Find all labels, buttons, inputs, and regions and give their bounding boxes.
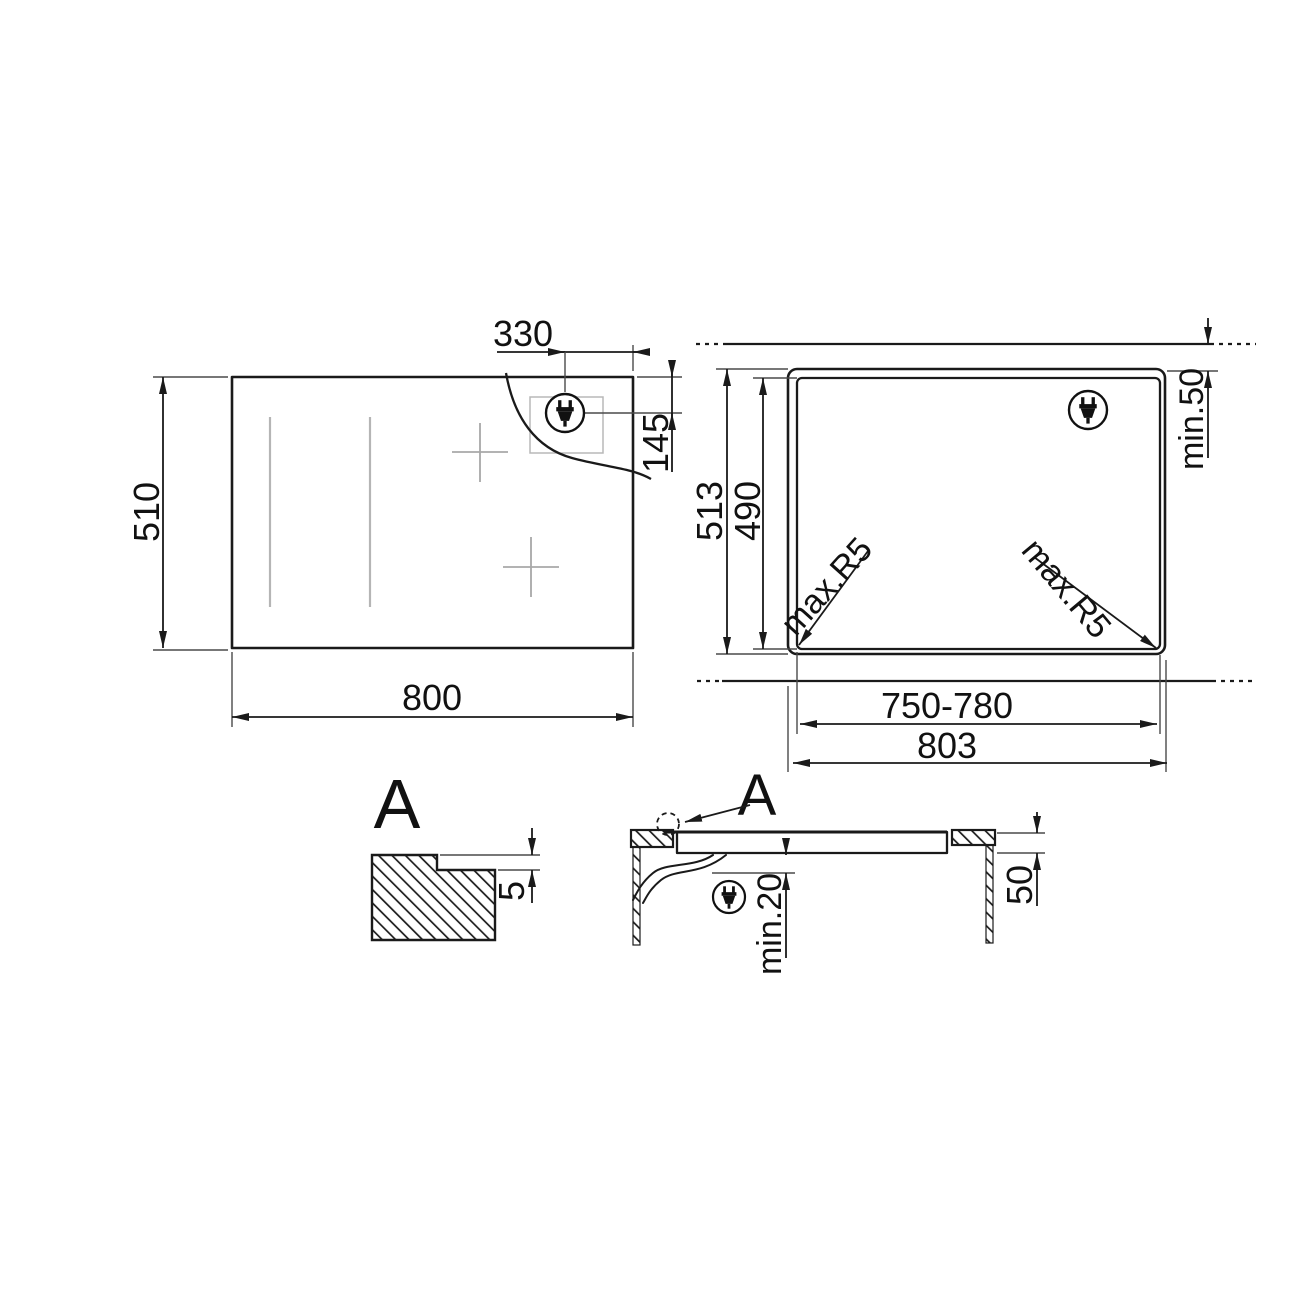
outer-height-dimension-label: 513 <box>689 481 730 541</box>
bottom-clearance-dimension-label: min.20 <box>751 873 789 975</box>
outer-width-dimension-label: 803 <box>917 725 977 766</box>
worktop-thickness-dimension-label: 50 <box>999 865 1040 905</box>
section-label: A <box>738 763 777 828</box>
worktop-rebate-section <box>372 855 495 940</box>
power-plug-icon <box>1069 391 1107 429</box>
detail-a-view: A 5 <box>372 765 540 940</box>
cabinet-wall-right <box>986 845 993 943</box>
zone-cross-marker <box>452 423 508 482</box>
step-depth-dimension-label: 5 <box>491 881 532 901</box>
power-plug-icon <box>546 394 584 432</box>
plug-inset-dimension-label: 145 <box>635 413 676 473</box>
mains-cable <box>633 855 713 900</box>
installation-drawing-page: 510 800 330 145 <box>0 0 1300 1300</box>
hob-body-section <box>677 832 947 853</box>
worktop-section-right <box>952 830 995 845</box>
detail-label: A <box>374 765 421 843</box>
height-dimension-label: 510 <box>126 482 167 542</box>
installation-drawing: 510 800 330 145 <box>0 0 1300 1300</box>
plug-offset-dimension-label: 330 <box>493 313 553 354</box>
cutout-view: 513 490 min.50 max.R5 max.R5 750-780 803 <box>689 318 1256 772</box>
zone-cross-marker <box>503 537 559 597</box>
power-plug-icon <box>713 881 745 913</box>
rear-clearance-dimension-label: min.50 <box>1173 368 1211 470</box>
top-view: 510 800 330 145 <box>126 313 682 727</box>
radius-label-left: max.R5 <box>773 530 880 642</box>
radius-label-right: max.R5 <box>1014 532 1118 646</box>
cutout-width-dimension-label: 750-780 <box>881 685 1013 726</box>
cutout-height-dimension-label: 490 <box>727 481 768 541</box>
section-view: A min.20 50 <box>631 763 1045 975</box>
width-dimension-label: 800 <box>402 677 462 718</box>
